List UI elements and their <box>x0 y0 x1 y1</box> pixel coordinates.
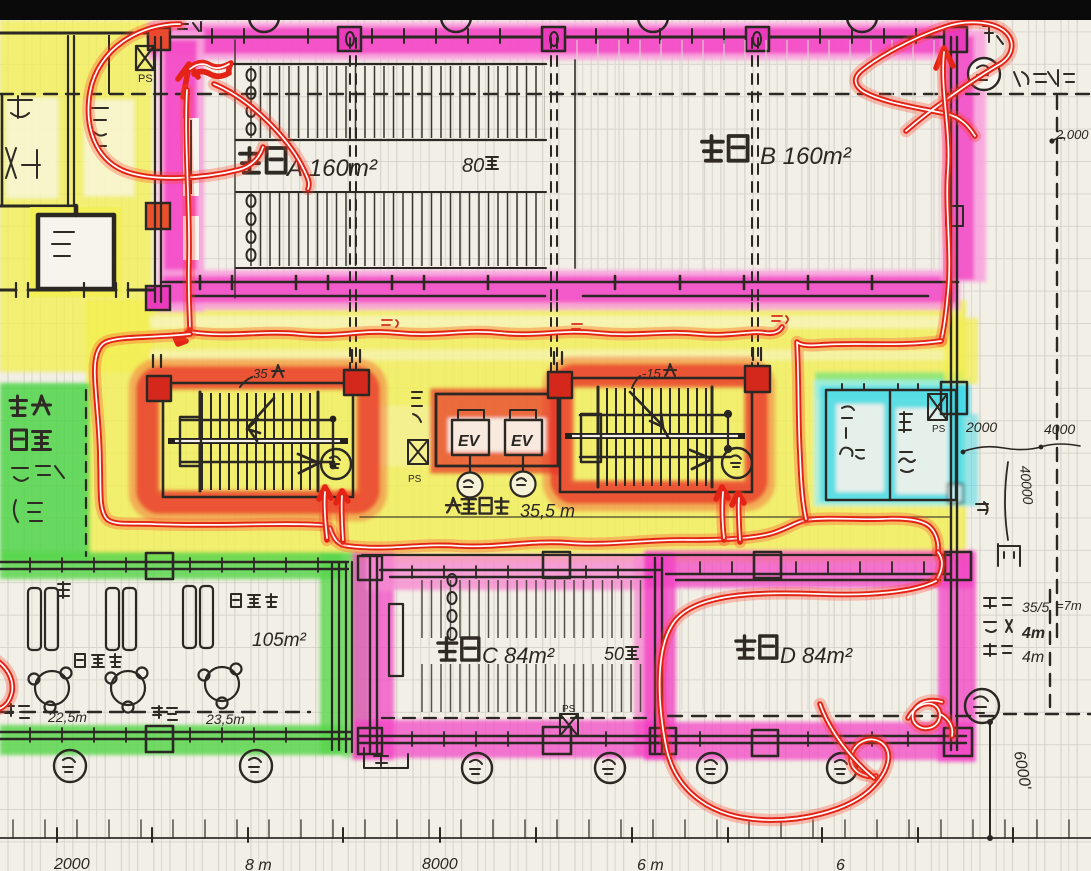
svg-text:23,5m: 23,5m <box>205 711 245 727</box>
svg-text:PS: PS <box>408 474 422 485</box>
svg-text:35,5 m: 35,5 m <box>520 501 575 521</box>
svg-text:6: 6 <box>836 857 845 871</box>
svg-text:6 m: 6 m <box>637 857 664 871</box>
svg-text:50: 50 <box>604 644 624 664</box>
svg-text:4m: 4m <box>1021 625 1045 642</box>
svg-text:22,5m: 22,5m <box>47 709 87 725</box>
svg-text:PS: PS <box>932 424 946 435</box>
svg-text:8000: 8000 <box>422 856 458 871</box>
svg-text:35: 35 <box>253 366 268 381</box>
svg-text:4m: 4m <box>1022 649 1044 666</box>
svg-text:-15: -15 <box>642 366 662 381</box>
svg-text:PS: PS <box>562 704 576 715</box>
svg-text:C 84m²: C 84m² <box>482 643 555 668</box>
svg-text:105m²: 105m² <box>252 630 307 651</box>
svg-text:2000: 2000 <box>53 856 90 871</box>
svg-text:4000: 4000 <box>1044 421 1075 437</box>
svg-text:35/5: 35/5 <box>1022 599 1049 615</box>
svg-text:80: 80 <box>462 155 484 177</box>
svg-text:B 160m²: B 160m² <box>760 143 852 170</box>
svg-text:8 m: 8 m <box>245 857 272 871</box>
svg-text:EV: EV <box>458 433 481 450</box>
svg-text:D 84m²: D 84m² <box>780 643 853 668</box>
svg-text:40000: 40000 <box>1017 465 1036 505</box>
svg-text:EV: EV <box>511 433 534 450</box>
svg-text:=7m: =7m <box>1056 598 1082 613</box>
svg-text:PS: PS <box>138 73 153 85</box>
svg-text:2,000: 2,000 <box>1055 127 1089 142</box>
svg-text:2000: 2000 <box>965 419 997 435</box>
